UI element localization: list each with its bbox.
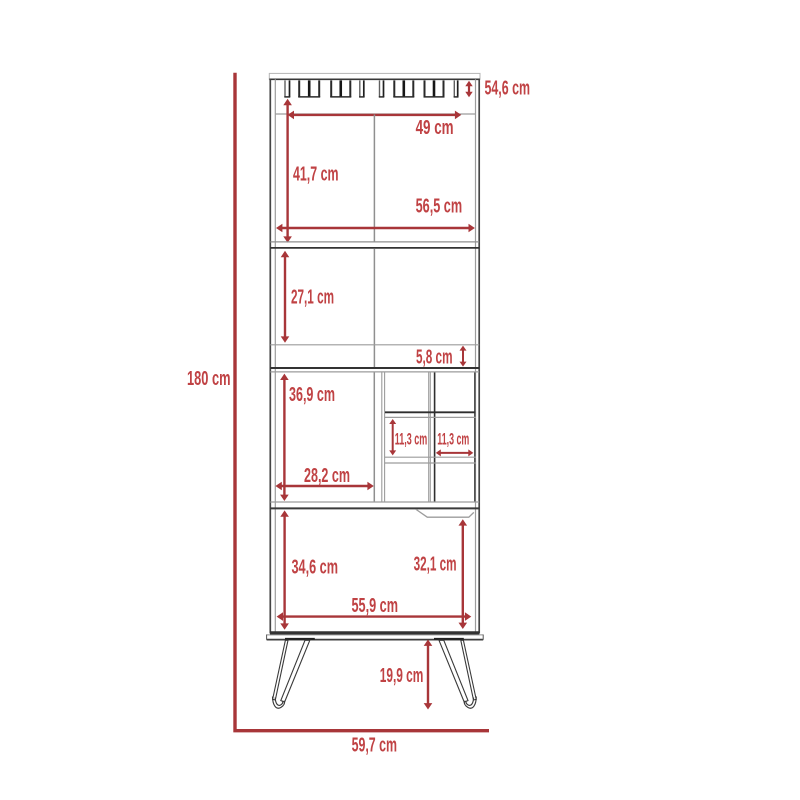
svg-text:54,6 cm: 54,6 cm <box>485 77 531 99</box>
svg-text:41,7 cm: 41,7 cm <box>293 163 339 185</box>
svg-text:28,2 cm: 28,2 cm <box>304 465 350 487</box>
svg-text:56,5 cm: 56,5 cm <box>416 196 463 218</box>
svg-text:19,9 cm: 19,9 cm <box>380 665 424 687</box>
svg-text:34,6 cm: 34,6 cm <box>292 557 339 579</box>
svg-text:11,3 cm: 11,3 cm <box>395 430 428 448</box>
svg-text:5,8 cm: 5,8 cm <box>416 347 453 369</box>
svg-text:27,1 cm: 27,1 cm <box>291 286 334 308</box>
svg-text:59,7 cm: 59,7 cm <box>352 735 397 757</box>
svg-text:36,9 cm: 36,9 cm <box>289 384 335 406</box>
svg-text:32,1 cm: 32,1 cm <box>414 554 457 576</box>
svg-text:55,9 cm: 55,9 cm <box>352 595 399 617</box>
svg-text:11,3 cm: 11,3 cm <box>437 430 469 448</box>
svg-text:180 cm: 180 cm <box>187 368 231 390</box>
svg-text:49 cm: 49 cm <box>416 117 454 139</box>
